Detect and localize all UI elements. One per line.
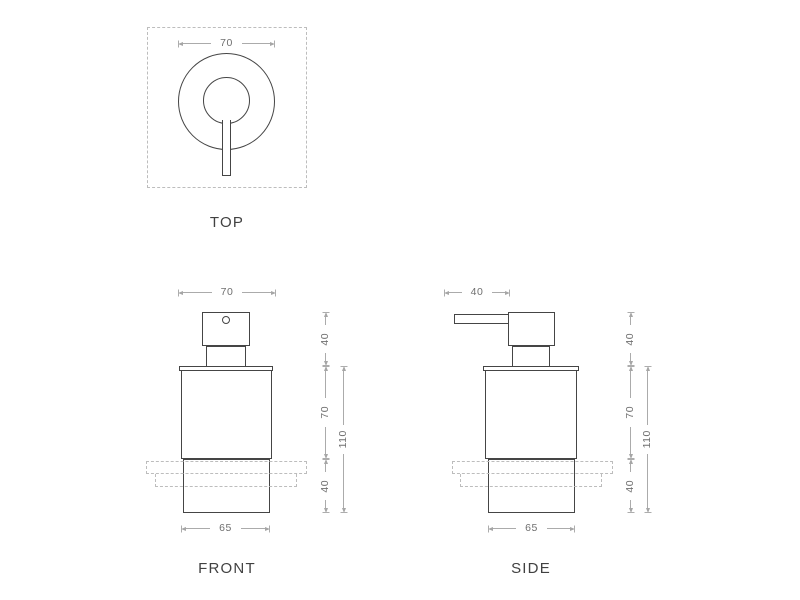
- front-base-width-dimension: 65: [181, 523, 270, 534]
- dim-value: 40: [625, 333, 636, 346]
- front-body-height-dimension: 70: [320, 366, 331, 459]
- dim-value: 110: [642, 430, 653, 448]
- dim-arrow-right-icon: [570, 527, 575, 531]
- dim-line: [492, 292, 505, 293]
- top-view-spout: [222, 120, 231, 176]
- dim-line: [547, 528, 570, 529]
- side-view-label: SIDE: [431, 560, 631, 577]
- side-base-width-dimension: 65: [488, 523, 575, 534]
- side-holder-outline-lower: [460, 474, 602, 487]
- side-pump-head: [508, 312, 555, 346]
- dim-value: 65: [219, 523, 232, 534]
- dim-value: 70: [320, 406, 331, 419]
- dim-line: [630, 464, 631, 472]
- front-width-dimension: 70: [178, 287, 276, 298]
- dim-value: 110: [338, 430, 349, 448]
- dim-line: [343, 371, 344, 425]
- dim-arrow-right-icon: [270, 42, 275, 46]
- top-view-width-dimension: 70: [178, 38, 275, 49]
- dim-value: 70: [221, 287, 234, 298]
- dim-line: [325, 427, 326, 454]
- front-total-height-dimension: 110: [338, 366, 349, 513]
- side-pump-height-dimension: 40: [625, 312, 636, 366]
- dim-line: [630, 500, 631, 508]
- top-view-inner-circle: [203, 77, 250, 124]
- side-body-height-dimension: 70: [625, 366, 636, 459]
- technical-drawing-canvas: 70 TOP 70 65: [0, 0, 800, 600]
- dim-line: [493, 528, 516, 529]
- dim-line: [325, 353, 326, 361]
- dim-line: [242, 43, 270, 44]
- dim-line: [647, 371, 648, 425]
- dim-line: [325, 500, 326, 508]
- dim-line: [183, 292, 212, 293]
- dim-line: [325, 371, 326, 398]
- dim-value: 40: [625, 480, 636, 493]
- dim-value: 40: [320, 333, 331, 346]
- front-view-label: FRONT: [127, 560, 327, 577]
- dim-line: [325, 464, 326, 472]
- dim-value: 40: [320, 480, 331, 493]
- dim-line: [630, 427, 631, 454]
- side-spout-depth-dimension: 40: [444, 287, 510, 298]
- dim-line: [630, 317, 631, 325]
- dim-line: [325, 317, 326, 325]
- dim-line: [186, 528, 210, 529]
- dim-line: [343, 454, 344, 508]
- dim-arrow-down-icon: [324, 508, 328, 513]
- front-pump-height-dimension: 40: [320, 312, 331, 366]
- dim-line: [449, 292, 462, 293]
- side-total-height-dimension: 110: [642, 366, 653, 513]
- dim-value: 70: [220, 38, 233, 49]
- side-body: [485, 370, 577, 459]
- dim-line: [630, 371, 631, 398]
- dim-line: [630, 353, 631, 361]
- side-spout: [454, 314, 510, 324]
- dim-arrow-down-icon: [646, 508, 650, 513]
- dim-line: [241, 528, 265, 529]
- side-holder-outline-upper: [452, 461, 613, 474]
- side-holder-height-dimension: 40: [625, 459, 636, 513]
- dim-value: 40: [471, 287, 484, 298]
- dim-arrow-right-icon: [265, 527, 270, 531]
- dim-line: [183, 43, 211, 44]
- front-holder-outline-lower: [155, 474, 297, 487]
- dim-arrow-right-icon: [505, 291, 510, 295]
- front-body: [181, 370, 272, 459]
- dim-arrow-down-icon: [342, 508, 346, 513]
- dim-value: 70: [625, 406, 636, 419]
- top-view-label: TOP: [127, 214, 327, 231]
- dim-line: [647, 454, 648, 508]
- dim-arrow-down-icon: [629, 508, 633, 513]
- front-pump-nozzle-hole: [222, 316, 230, 324]
- dim-arrow-right-icon: [271, 291, 276, 295]
- dim-value: 65: [525, 523, 538, 534]
- dim-line: [242, 292, 271, 293]
- front-holder-height-dimension: 40: [320, 459, 331, 513]
- front-holder-outline-upper: [146, 461, 307, 474]
